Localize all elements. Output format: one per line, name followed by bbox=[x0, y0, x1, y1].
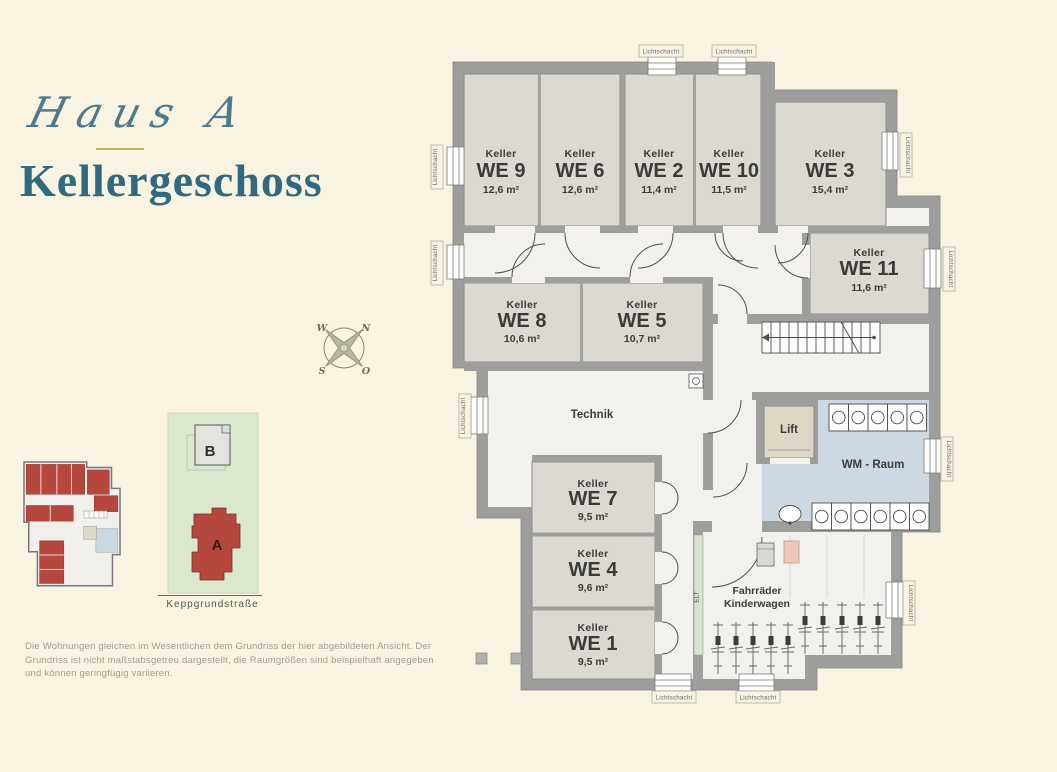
svg-text:WE 11: WE 11 bbox=[840, 258, 899, 280]
svg-text:Lichtschacht: Lichtschacht bbox=[643, 49, 680, 56]
svg-text:9,6 m²: 9,6 m² bbox=[578, 582, 609, 594]
svg-text:Lichtschacht: Lichtschacht bbox=[740, 695, 777, 702]
gold-divider bbox=[96, 148, 144, 150]
svg-text:WE 7: WE 7 bbox=[569, 488, 618, 510]
svg-text:Lichtschacht: Lichtschacht bbox=[656, 695, 693, 702]
exterior-columns bbox=[476, 653, 522, 664]
lift-label: Lift bbox=[780, 424, 798, 436]
site-plan: B A bbox=[155, 406, 270, 618]
svg-text:WE 3: WE 3 bbox=[806, 160, 855, 182]
svg-text:Keller: Keller bbox=[644, 148, 675, 160]
kinderwagen-label: Kinderwagen bbox=[724, 598, 790, 610]
compass-east: O bbox=[362, 366, 371, 377]
key-plan-lift bbox=[84, 526, 97, 539]
svg-text:11,5 m²: 11,5 m² bbox=[711, 184, 747, 196]
svg-text:Keller: Keller bbox=[815, 148, 846, 160]
brochure-page: Haus A Kellergeschoss W N S O bbox=[0, 0, 1057, 772]
key-plan bbox=[23, 460, 123, 588]
compass-west: W bbox=[317, 323, 329, 334]
svg-text:9,5 m²: 9,5 m² bbox=[578, 511, 609, 523]
staircase bbox=[762, 322, 880, 353]
street-label: Keppgrundstraße bbox=[155, 599, 270, 610]
svg-text:9,5 m²: 9,5 m² bbox=[578, 656, 609, 668]
svg-text:12,6 m²: 12,6 m² bbox=[562, 184, 599, 196]
page-title: Kellergeschoss bbox=[20, 154, 323, 207]
svg-text:12,6 m²: 12,6 m² bbox=[483, 184, 520, 196]
lift: Lift bbox=[756, 398, 822, 464]
svg-text:Lichtschacht: Lichtschacht bbox=[904, 137, 911, 174]
svg-text:Lichtschacht: Lichtschacht bbox=[716, 49, 753, 56]
technik-label: Technik bbox=[571, 409, 614, 421]
svg-text:10,7 m²: 10,7 m² bbox=[624, 333, 661, 345]
svg-text:WE 9: WE 9 bbox=[477, 160, 526, 182]
disclaimer-line-3: und können geringfügig variieren. bbox=[25, 667, 445, 681]
svg-text:Lichtschacht: Lichtschacht bbox=[432, 149, 439, 186]
svg-text:Lichtschacht: Lichtschacht bbox=[432, 245, 439, 282]
fahrraeder-label: Fahrräder bbox=[732, 585, 781, 597]
street-line bbox=[158, 595, 262, 596]
compass-south: S bbox=[319, 366, 326, 377]
svg-text:10,6 m²: 10,6 m² bbox=[504, 333, 541, 345]
site-building-b-label: B bbox=[205, 443, 216, 460]
svg-text:WE 1: WE 1 bbox=[569, 633, 618, 655]
key-plan-wm bbox=[96, 529, 118, 553]
disclaimer-text: Die Wohnungen gleichen im Wesentlichen d… bbox=[25, 640, 445, 681]
svg-text:Lichtschacht: Lichtschacht bbox=[947, 251, 954, 288]
key-plan-stairs bbox=[84, 511, 107, 518]
wm-raum-label: WM - Raum bbox=[842, 459, 905, 471]
svg-text:Keller: Keller bbox=[714, 148, 745, 160]
svg-text:Keller: Keller bbox=[565, 148, 596, 160]
svg-text:WE 5: WE 5 bbox=[618, 310, 667, 332]
svg-text:WE 10: WE 10 bbox=[699, 160, 759, 182]
svg-text:15,4 m²: 15,4 m² bbox=[812, 184, 849, 196]
svg-text:Lichtschacht: Lichtschacht bbox=[945, 441, 952, 478]
house-script-title: Haus A bbox=[24, 88, 256, 137]
elt-label: ELT bbox=[694, 591, 701, 602]
elt-niche: ELT bbox=[694, 535, 704, 655]
svg-text:WE 6: WE 6 bbox=[556, 160, 605, 182]
svg-text:WE 8: WE 8 bbox=[498, 310, 547, 332]
floor-drain-icon bbox=[689, 374, 703, 388]
svg-text:11,4 m²: 11,4 m² bbox=[641, 184, 677, 196]
site-building-a-label: A bbox=[212, 537, 223, 554]
svg-text:WE 4: WE 4 bbox=[569, 559, 619, 581]
floor-plan: Lift WM - Raum Technik bbox=[425, 35, 960, 710]
compass-north: N bbox=[361, 323, 371, 334]
svg-text:WE 2: WE 2 bbox=[635, 160, 684, 182]
svg-text:Lichtschacht: Lichtschacht bbox=[460, 398, 467, 435]
compass-rose: W N S O bbox=[312, 316, 376, 380]
svg-text:Keller: Keller bbox=[486, 148, 517, 160]
svg-text:Lichtschacht: Lichtschacht bbox=[907, 585, 914, 622]
svg-text:11,6 m²: 11,6 m² bbox=[851, 282, 887, 294]
disclaimer-line-1: Die Wohnungen gleichen im Wesentlichen d… bbox=[25, 640, 445, 654]
disclaimer-line-2: Grundriss ist nicht maßstabsgetreu darge… bbox=[25, 654, 445, 668]
